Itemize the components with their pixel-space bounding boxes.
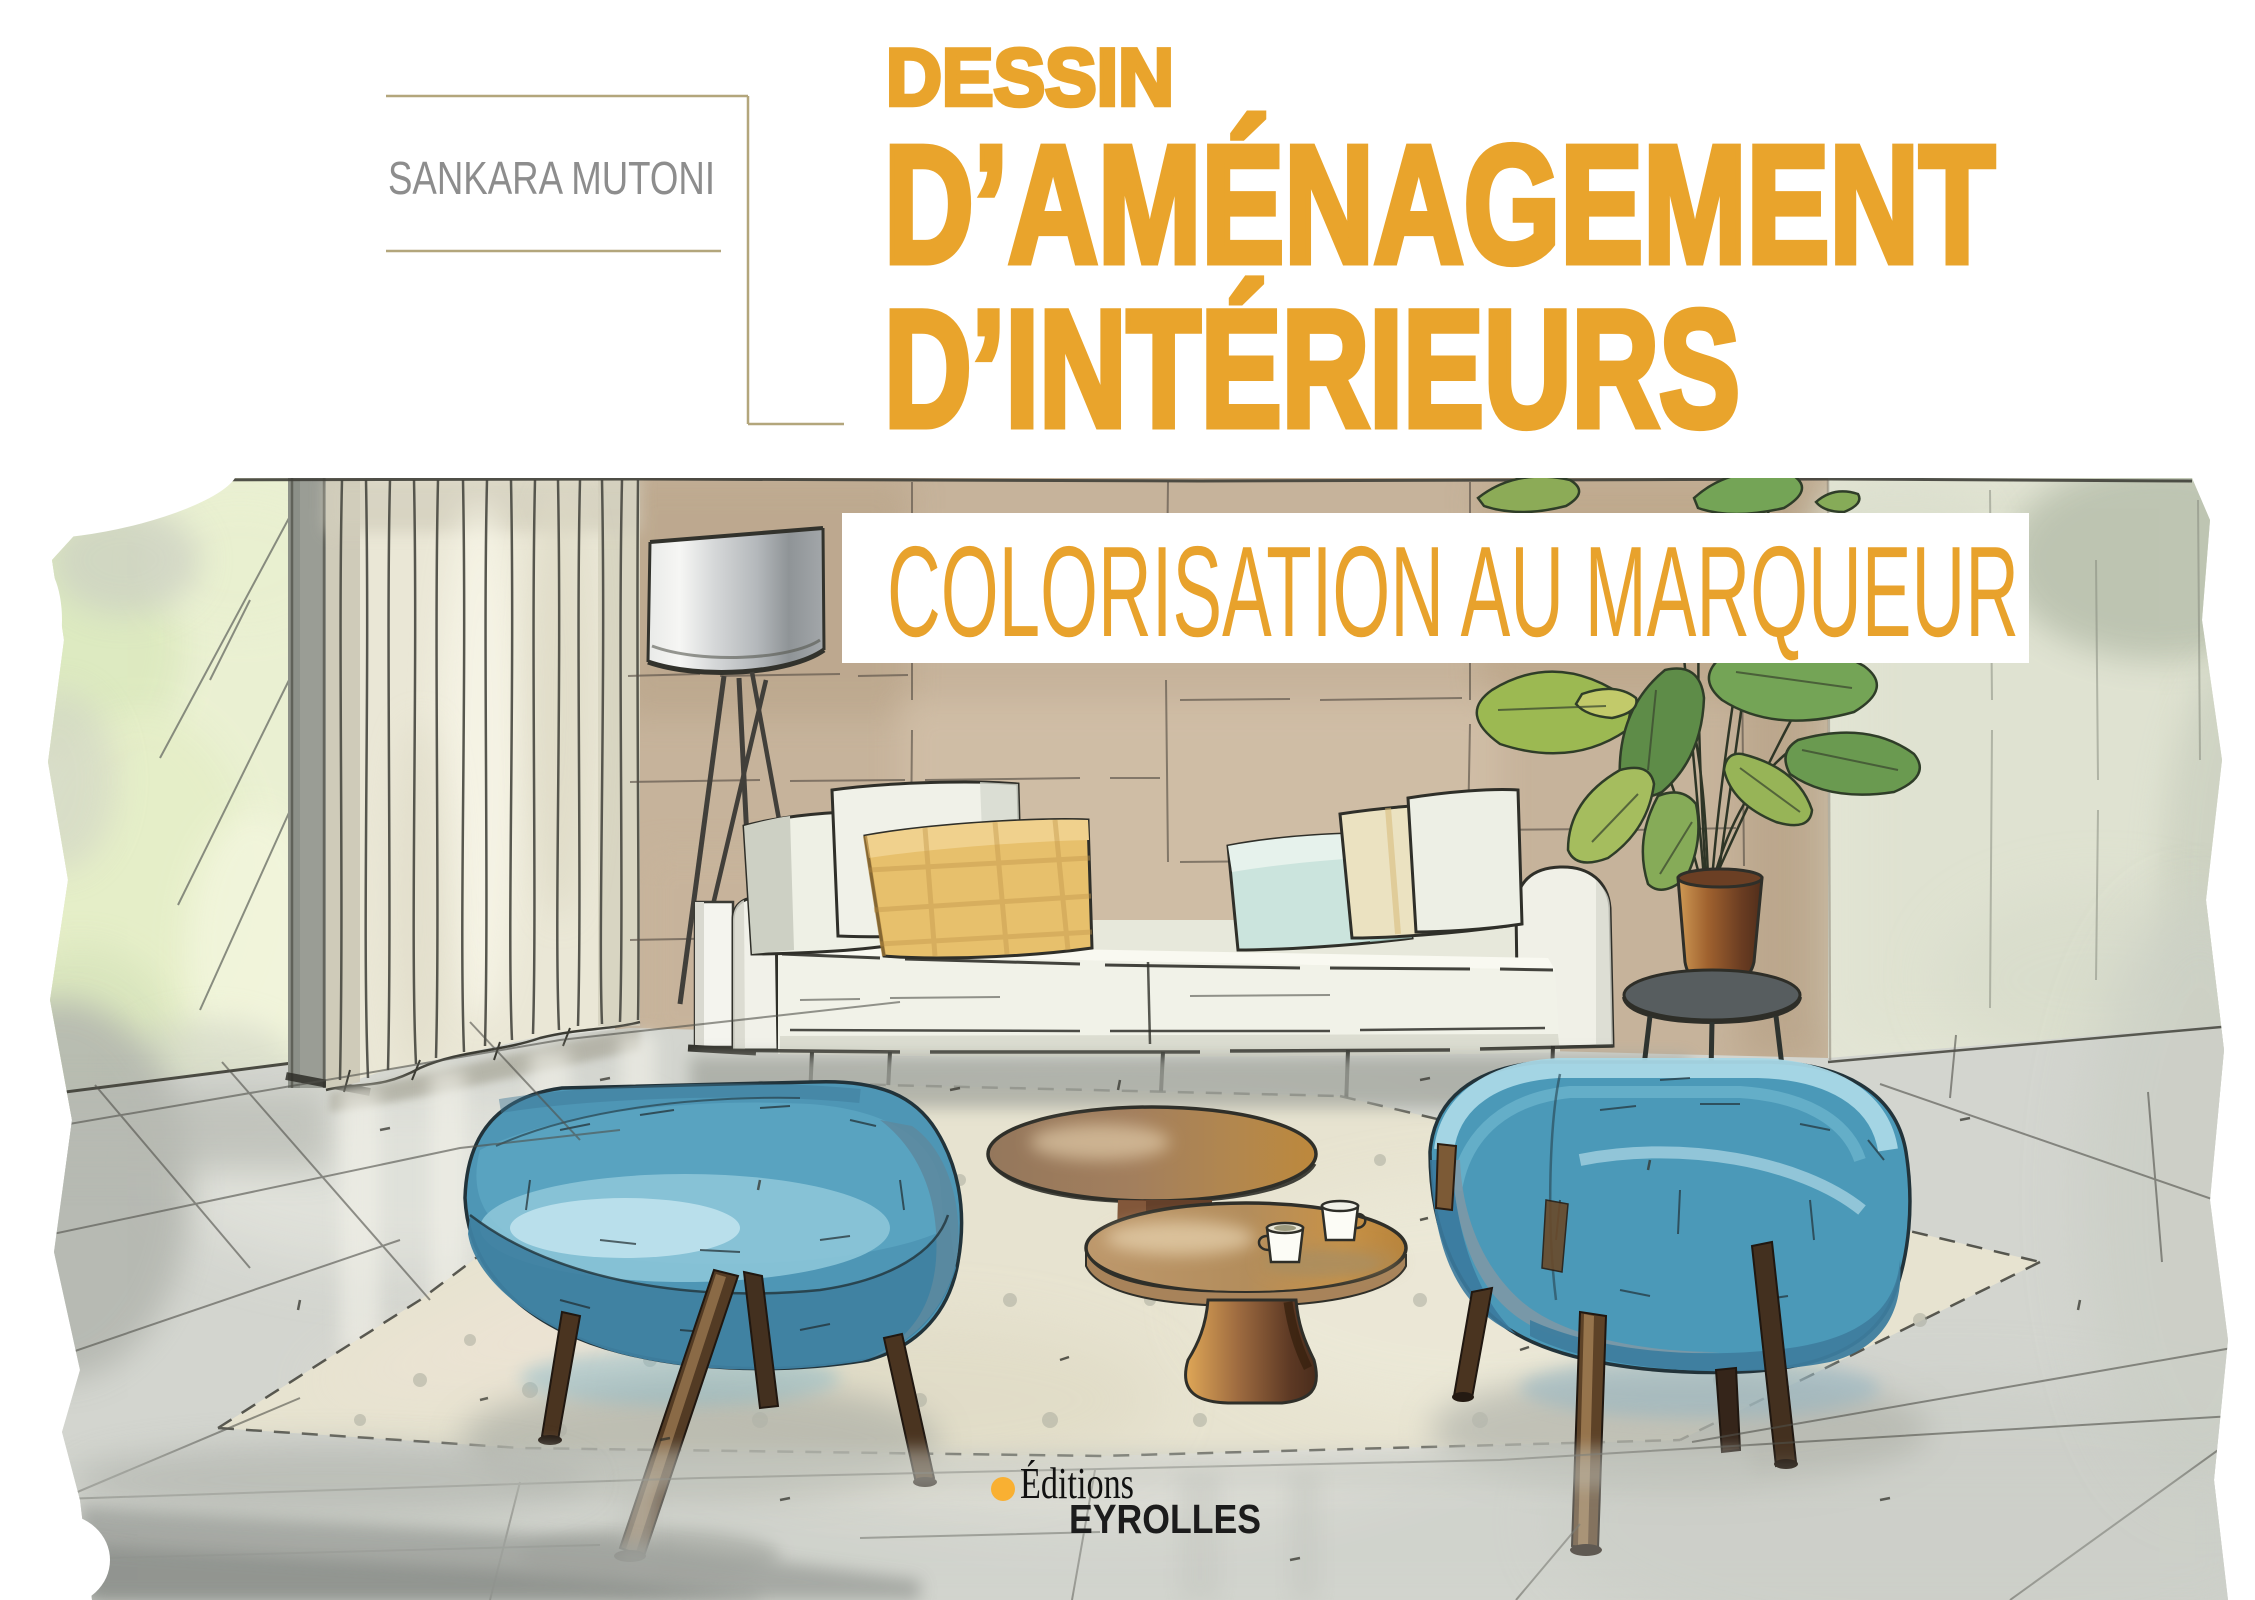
svg-text:D’INTÉRIEURS: D’INTÉRIEURS — [884, 277, 1740, 462]
svg-text:SANKARA MUTONI: SANKARA MUTONI — [388, 152, 715, 204]
svg-text:EYROLLES: EYROLLES — [1069, 1496, 1261, 1542]
svg-text:COLORISATION AU MARQUEUR: COLORISATION AU MARQUEUR — [887, 520, 2019, 664]
svg-text:DESSIN: DESSIN — [886, 33, 1174, 123]
svg-text:D’AMÉNAGEMENT: D’AMÉNAGEMENT — [884, 112, 1995, 298]
